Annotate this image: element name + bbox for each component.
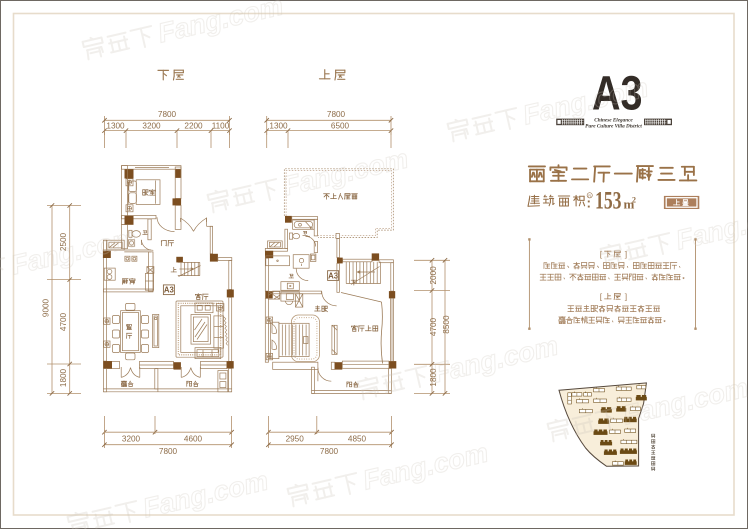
svg-text:8500: 8500 (442, 315, 451, 334)
svg-text:Fang.com: Fang.com (620, 373, 748, 431)
svg-text:Fang.com: Fang.com (155, 0, 286, 48)
svg-text:A3: A3 (164, 286, 175, 295)
svg-text:7800: 7800 (327, 110, 346, 119)
svg-text:2200: 2200 (184, 121, 203, 130)
svg-text:R: R (588, 194, 591, 198)
svg-text:1300: 1300 (106, 121, 125, 130)
svg-text:1100: 1100 (212, 121, 230, 130)
svg-text:6500: 6500 (331, 121, 350, 130)
svg-text:4600: 4600 (184, 435, 203, 444)
svg-text:Fang.com: Fang.com (360, 438, 491, 496)
svg-text:153: 153 (595, 188, 622, 215)
svg-text:7800: 7800 (320, 447, 339, 456)
svg-text:Pure Culture Villa District: Pure Culture Villa District (585, 123, 642, 129)
svg-text:9000: 9000 (42, 298, 51, 317)
svg-text:2000: 2000 (429, 266, 438, 285)
svg-text:7800: 7800 (159, 447, 178, 456)
svg-text:1800: 1800 (59, 368, 68, 387)
svg-text:2950: 2950 (286, 435, 305, 444)
svg-text:]: ] (625, 292, 627, 302)
svg-text:4850: 4850 (348, 435, 367, 444)
svg-text:4700: 4700 (429, 317, 438, 336)
svg-text:7800: 7800 (158, 110, 177, 119)
svg-text:Fang.com: Fang.com (8, 223, 139, 281)
svg-text:3200: 3200 (142, 121, 161, 130)
svg-text:1300: 1300 (269, 121, 288, 130)
svg-text:[: [ (600, 292, 603, 302)
svg-text:2: 2 (632, 195, 636, 204)
svg-text:Fang.com: Fang.com (280, 144, 411, 202)
svg-text:3200: 3200 (122, 435, 141, 444)
svg-text:Fang.com: Fang.com (430, 331, 561, 389)
svg-text:4700: 4700 (59, 312, 68, 331)
